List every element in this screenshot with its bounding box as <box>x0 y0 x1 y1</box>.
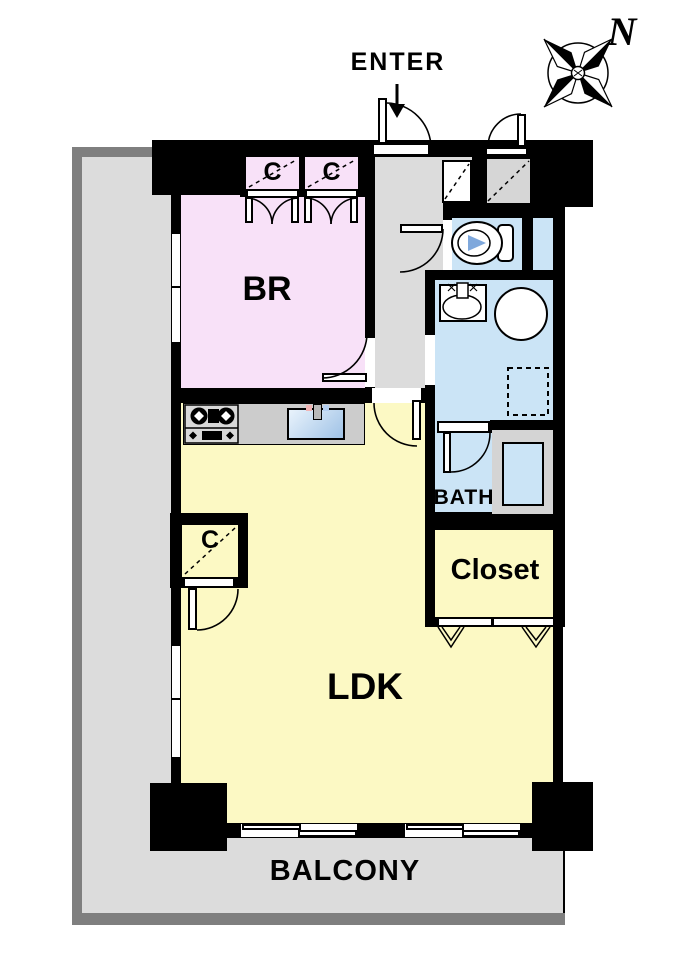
enter-label: ENTER <box>348 50 448 75</box>
bedroom-label: BR <box>225 272 309 306</box>
closet-left-jamb-b <box>291 197 299 223</box>
closet-right-jamb-a <box>304 197 312 223</box>
toilet-door-opening <box>443 220 452 270</box>
bathtub <box>502 442 544 506</box>
wall-right-upper <box>553 207 565 627</box>
washroom <box>435 270 553 430</box>
service-door-leaf <box>517 114 526 147</box>
wall-right-lower <box>553 627 563 782</box>
bedroom-door-leaf <box>322 373 367 382</box>
entrance-arrow <box>389 84 405 118</box>
pillar-top-right <box>532 140 593 207</box>
balcony-right-edge <box>563 851 565 913</box>
wall-bath-closet <box>425 512 565 530</box>
balcony-railing-left <box>72 147 82 925</box>
bath-door-leaf <box>443 432 451 473</box>
closet-main-sill <box>437 617 555 627</box>
bedroom-window-tick <box>171 286 181 288</box>
wall-toilet-pipe <box>522 218 533 275</box>
wall-nook-divider <box>472 155 485 207</box>
closet-left-jamb-a <box>245 197 253 223</box>
balcony-slider-left-panel-b <box>298 830 357 837</box>
floor-plan: ENTER N BR C C C BATH Closet LDK BALCONY <box>0 0 688 971</box>
ldk-window <box>171 645 181 758</box>
wall-east-vertical <box>425 270 435 627</box>
entrance-door-leaf <box>378 98 387 144</box>
wall-washroom-top <box>435 270 565 280</box>
bedroom-window <box>171 233 181 343</box>
service-door-sill <box>485 147 528 156</box>
balcony-slider-right-panel-a <box>406 824 464 830</box>
kitchen-faucet <box>313 404 322 420</box>
toilet-door-leaf <box>400 224 443 233</box>
ldk-room-upper <box>181 388 425 823</box>
ldk-closet-label: C <box>182 528 238 553</box>
ldk-closet-door-leaf <box>188 588 197 630</box>
faucet-hot-mark <box>306 405 312 411</box>
pillar-top-left <box>152 140 240 195</box>
entrance-door-sill <box>372 143 430 156</box>
pillar-bottom-right <box>532 782 593 851</box>
washroom-opening <box>425 335 435 385</box>
balcony-slider-right-panel-b <box>462 830 520 837</box>
closet-sill-divider <box>491 617 494 627</box>
balcony-slider-left-panel-a <box>242 824 301 830</box>
closet-left-label: C <box>246 160 299 185</box>
pipe-space <box>533 218 553 270</box>
closet-label: Closet <box>437 556 553 585</box>
pillar-bottom-left <box>150 783 227 851</box>
closet-right-jamb-b <box>350 197 358 223</box>
entry-storage-box <box>485 157 532 205</box>
wall-above-toilet <box>443 203 565 218</box>
north-label: N <box>600 12 644 52</box>
closet-right-label: C <box>305 160 358 185</box>
faucet-cold-mark <box>323 405 329 411</box>
entry-shoe-box <box>442 160 472 203</box>
ldk-closet-sill <box>183 577 235 588</box>
wall-closet-bottom-stub <box>425 617 437 627</box>
ldk-label: LDK <box>303 668 427 705</box>
balcony-railing-bottom <box>72 913 565 925</box>
ldk-window-tick <box>171 698 181 700</box>
ldk-door-leaf <box>412 400 421 440</box>
bath-label: BATH <box>430 487 498 508</box>
balcony-label: BALCONY <box>225 857 465 886</box>
